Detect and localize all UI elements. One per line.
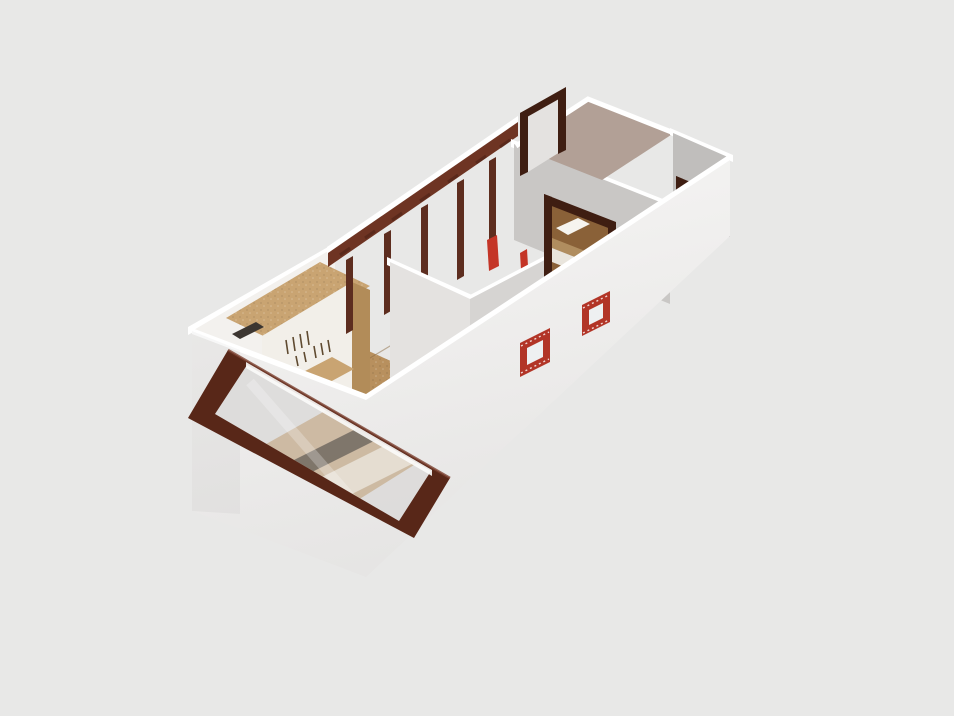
door-post-right [558, 88, 566, 154]
red-accent-1 [487, 235, 499, 271]
floorplan-render [0, 0, 954, 716]
stud-post-1 [346, 256, 353, 334]
wardrobe-side-panel [352, 282, 370, 408]
3d-viewport[interactable] [0, 0, 954, 716]
stud-post-2 [384, 230, 391, 315]
door-post-left [520, 109, 528, 176]
stud-post-4 [457, 179, 464, 280]
doorway-post-left [544, 194, 552, 284]
